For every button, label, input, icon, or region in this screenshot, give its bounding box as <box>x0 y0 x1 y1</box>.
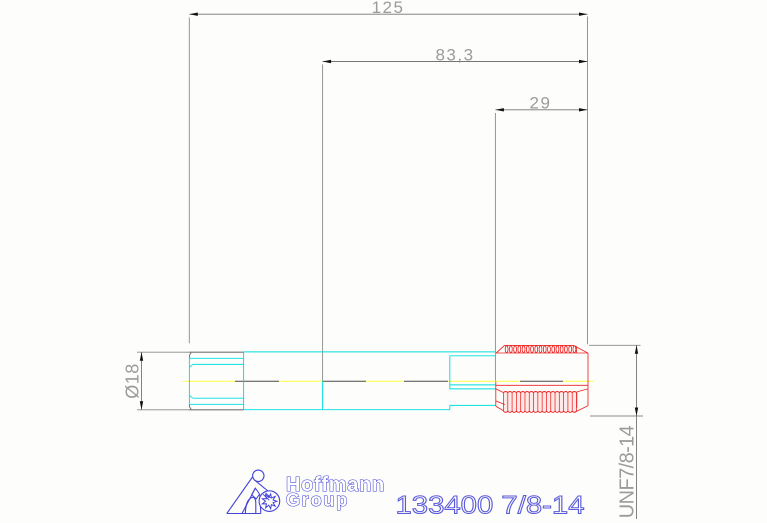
svg-text:83,3: 83,3 <box>435 45 474 64</box>
svg-text:UNF7/8-14: UNF7/8-14 <box>617 425 639 518</box>
svg-text:Group: Group <box>286 490 349 510</box>
svg-text:125: 125 <box>372 0 405 17</box>
svg-text:Ø18: Ø18 <box>123 363 143 399</box>
svg-text:133400 7/8-14: 133400 7/8-14 <box>396 491 585 519</box>
svg-text:29: 29 <box>530 94 552 113</box>
